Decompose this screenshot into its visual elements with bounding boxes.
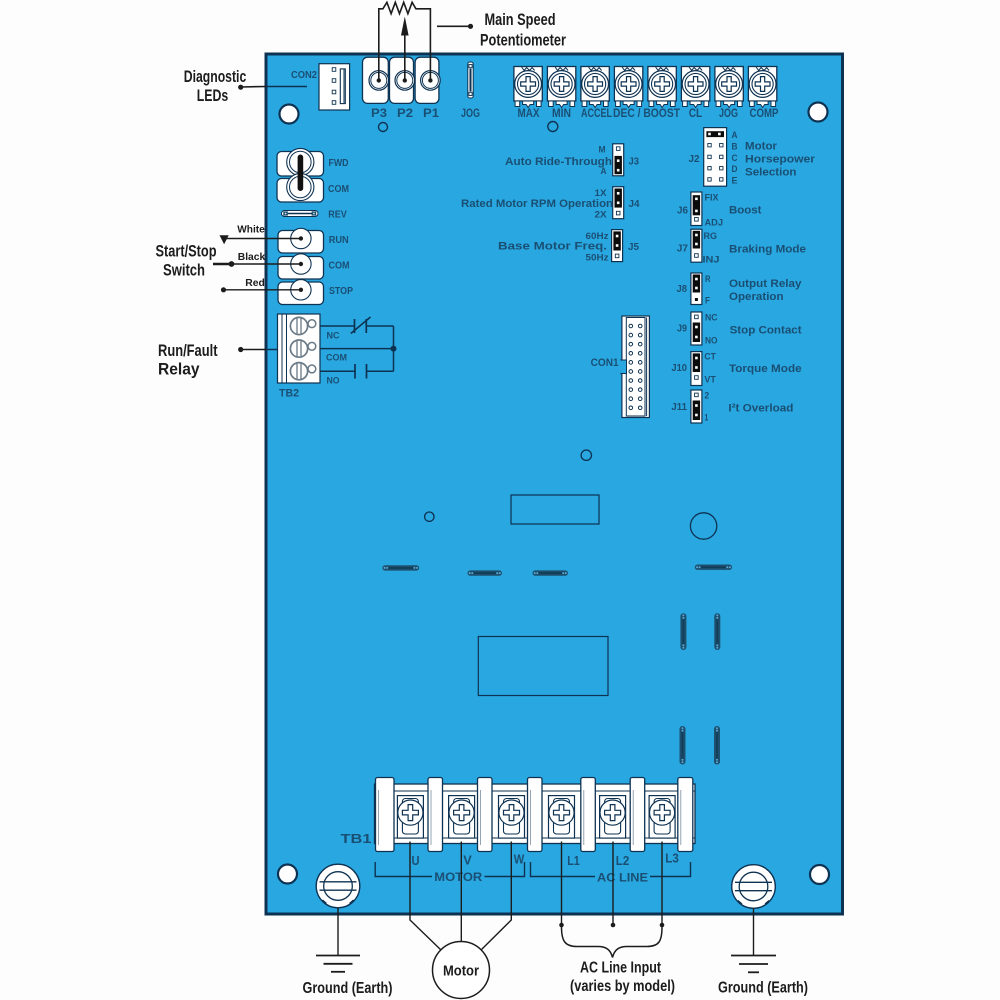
svg-text:I²t Overload: I²t Overload <box>728 402 793 414</box>
svg-text:L3: L3 <box>665 851 679 866</box>
svg-text:L1: L1 <box>567 853 580 868</box>
svg-text:Horsepower: Horsepower <box>745 153 816 165</box>
svg-text:Black: Black <box>238 251 266 263</box>
svg-text:Potentiometer: Potentiometer <box>480 32 566 50</box>
svg-text:C: C <box>732 153 738 164</box>
svg-text:STOP: STOP <box>329 285 353 297</box>
svg-text:COMP: COMP <box>750 108 779 120</box>
svg-text:U: U <box>412 853 420 868</box>
svg-text:REV: REV <box>328 209 347 221</box>
svg-text:J8: J8 <box>677 283 688 295</box>
svg-text:J4: J4 <box>629 198 640 210</box>
svg-text:NC: NC <box>705 312 718 323</box>
svg-text:J7: J7 <box>677 243 688 255</box>
svg-text:Motor: Motor <box>745 141 778 153</box>
svg-text:MAX: MAX <box>518 108 540 120</box>
svg-text:RG: RG <box>704 231 718 242</box>
svg-text:J2: J2 <box>689 153 700 165</box>
svg-text:Torque Mode: Torque Mode <box>729 363 802 375</box>
svg-text:R: R <box>705 274 711 285</box>
svg-text:MOTOR: MOTOR <box>434 870 482 884</box>
svg-text:Red: Red <box>245 277 265 289</box>
svg-text:ACCEL: ACCEL <box>581 108 612 120</box>
svg-text:CON1: CON1 <box>591 357 619 369</box>
svg-text:COM: COM <box>326 353 347 364</box>
svg-text:CL: CL <box>689 108 703 120</box>
svg-text:NC: NC <box>327 331 340 342</box>
svg-text:RUN: RUN <box>329 234 349 246</box>
svg-text:LEDs: LEDs <box>197 87 229 105</box>
svg-text:Relay: Relay <box>158 361 200 379</box>
svg-text:DEC / BOOST: DEC / BOOST <box>613 108 680 120</box>
svg-text:J9: J9 <box>677 322 687 334</box>
svg-text:Start/Stop: Start/Stop <box>156 243 217 261</box>
svg-text:Diagnostic: Diagnostic <box>184 68 247 86</box>
svg-text:A: A <box>732 130 738 141</box>
svg-text:TB1: TB1 <box>341 831 372 846</box>
svg-text:ADJ: ADJ <box>705 217 724 228</box>
svg-text:NO: NO <box>705 336 718 347</box>
svg-text:Selection: Selection <box>745 166 797 178</box>
svg-text:W: W <box>514 852 525 867</box>
svg-text:P1: P1 <box>423 108 440 120</box>
svg-text:J5: J5 <box>628 241 639 253</box>
svg-text:B: B <box>732 142 738 153</box>
svg-text:D: D <box>732 164 738 175</box>
svg-text:FIX: FIX <box>705 193 720 204</box>
svg-text:F: F <box>705 295 710 306</box>
svg-text:AC Line Input: AC Line Input <box>580 960 662 977</box>
svg-text:Boost: Boost <box>729 205 762 217</box>
svg-text:COM: COM <box>329 260 350 272</box>
svg-text:Motor: Motor <box>443 964 479 980</box>
svg-text:AC LINE: AC LINE <box>597 871 648 885</box>
svg-text:VT: VT <box>704 374 716 385</box>
svg-text:Rated Motor RPM Operation: Rated Motor RPM Operation <box>461 198 613 210</box>
svg-text:JOG: JOG <box>719 108 738 120</box>
svg-text:V: V <box>463 853 472 868</box>
svg-text:NO: NO <box>327 376 340 387</box>
svg-text:2: 2 <box>704 390 709 401</box>
svg-text:Ground (Earth): Ground (Earth) <box>718 980 808 997</box>
svg-text:MIN: MIN <box>552 108 571 120</box>
svg-text:CT: CT <box>704 351 716 362</box>
svg-text:TB2: TB2 <box>279 388 299 400</box>
svg-text:P3: P3 <box>371 108 387 120</box>
svg-text:Braking Mode: Braking Mode <box>729 244 806 256</box>
svg-text:1: 1 <box>704 412 709 423</box>
svg-text:Main Speed: Main Speed <box>485 11 556 29</box>
svg-text:CON2: CON2 <box>291 69 317 81</box>
svg-text:INJ: INJ <box>703 254 720 265</box>
svg-text:Switch: Switch <box>163 262 205 280</box>
svg-text:Output Relay: Output Relay <box>729 278 802 290</box>
svg-text:(varies by model): (varies by model) <box>570 978 675 995</box>
svg-text:J3: J3 <box>629 156 640 168</box>
svg-text:Base Motor Freq.: Base Motor Freq. <box>498 241 607 253</box>
svg-text:50Hz: 50Hz <box>586 253 609 264</box>
svg-text:J10: J10 <box>671 362 687 374</box>
svg-text:JOG: JOG <box>461 108 480 120</box>
svg-text:FWD: FWD <box>329 157 349 169</box>
svg-text:Ground (Earth): Ground (Earth) <box>303 980 393 997</box>
svg-text:E: E <box>732 175 738 186</box>
svg-text:M: M <box>599 145 606 156</box>
svg-text:P2: P2 <box>397 108 413 120</box>
svg-text:J11: J11 <box>671 401 687 413</box>
svg-text:COM: COM <box>328 183 349 195</box>
svg-text:Auto Ride-Through: Auto Ride-Through <box>505 156 612 168</box>
svg-text:J6: J6 <box>677 205 688 217</box>
svg-text:Stop Contact: Stop Contact <box>730 324 802 336</box>
svg-text:2X: 2X <box>595 210 608 221</box>
svg-text:Operation: Operation <box>729 291 784 303</box>
svg-text:L2: L2 <box>616 853 630 868</box>
svg-text:Run/Fault: Run/Fault <box>158 342 218 360</box>
svg-text:White: White <box>237 224 265 236</box>
